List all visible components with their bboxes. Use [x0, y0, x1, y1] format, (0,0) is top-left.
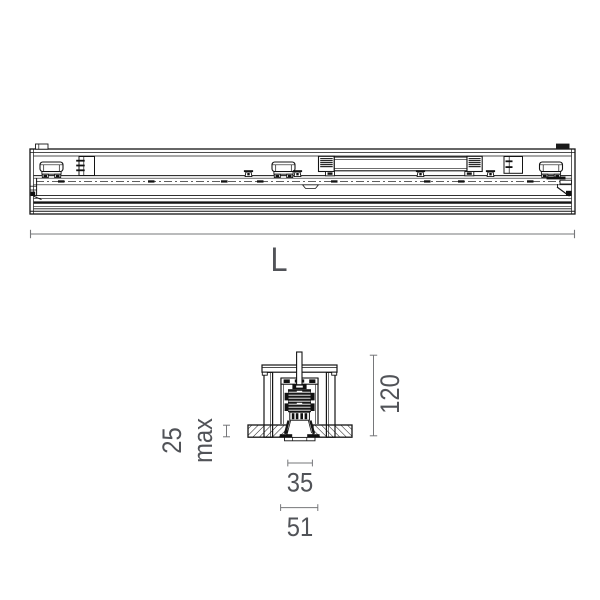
cable-hook — [416, 170, 425, 176]
height-dimension-label: 120 — [376, 374, 406, 414]
right-mounting-tab — [556, 144, 570, 150]
ceiling-thickness-dimension: 25 max — [158, 418, 230, 463]
flange-width-dimension: 51 — [281, 504, 318, 542]
reflector-detail — [303, 185, 319, 189]
fixture-side-view — [30, 144, 575, 214]
cable-hook — [293, 170, 302, 176]
trim-flange — [280, 434, 320, 441]
luminaire-dimension-drawing: L — [0, 0, 600, 600]
length-dimension-label: L — [270, 241, 287, 279]
fixture-section-view — [248, 352, 352, 441]
suspension-rod — [297, 352, 302, 386]
body-width-label: 35 — [287, 468, 313, 498]
height-dimension: 120 — [370, 355, 406, 436]
flange-width-label: 51 — [287, 513, 313, 543]
reflector-cone — [285, 421, 314, 434]
bottom-diffuser-band — [30, 196, 575, 212]
cable-hook — [244, 170, 253, 176]
ceiling-thickness-value: 25 — [158, 427, 188, 453]
heatsink-fins — [289, 392, 311, 410]
ceiling-thickness-unit: max — [189, 418, 219, 463]
led-module — [285, 384, 315, 420]
length-dimension: L — [31, 230, 575, 279]
cable-hook — [486, 170, 495, 176]
body-width-dimension: 35 — [287, 460, 313, 498]
terminal-block-left — [76, 157, 94, 176]
technical-drawing-canvas: L — [0, 0, 600, 600]
left-mounting-tab — [36, 144, 49, 149]
terminal-block-right — [504, 157, 523, 174]
